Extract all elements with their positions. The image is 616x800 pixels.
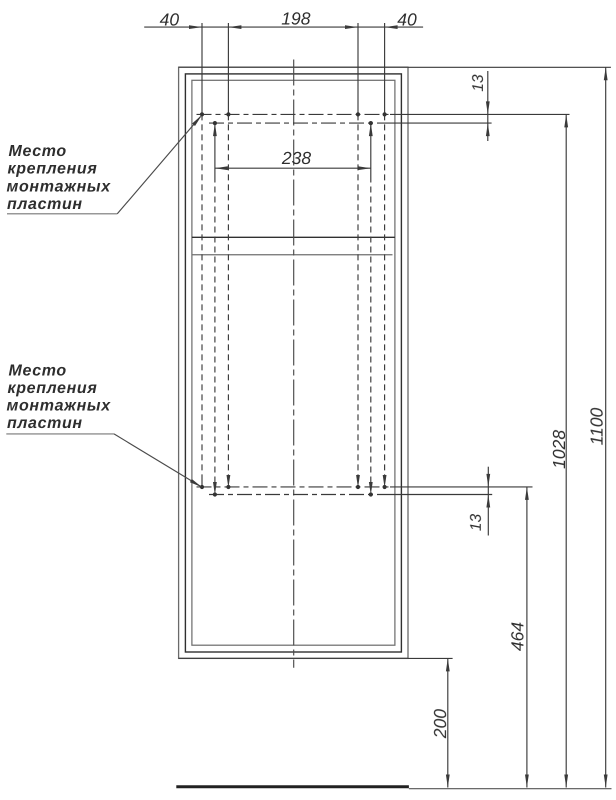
svg-text:238: 238	[281, 148, 311, 168]
svg-text:монтажных: монтажных	[7, 398, 112, 415]
svg-text:1100: 1100	[587, 408, 607, 446]
svg-text:пластин: пластин	[7, 415, 83, 432]
svg-text:198: 198	[281, 9, 310, 29]
svg-text:Место: Место	[9, 143, 67, 160]
svg-text:200: 200	[430, 709, 450, 739]
svg-text:13: 13	[470, 74, 487, 92]
svg-text:пластин: пластин	[7, 196, 83, 213]
svg-text:40: 40	[160, 10, 180, 30]
svg-text:13: 13	[468, 514, 485, 532]
svg-text:крепления: крепления	[8, 380, 98, 397]
svg-text:464: 464	[507, 622, 527, 651]
svg-text:40: 40	[397, 10, 417, 30]
svg-text:Место: Место	[9, 362, 67, 379]
svg-text:крепления: крепления	[8, 161, 98, 178]
svg-text:1028: 1028	[549, 430, 569, 469]
svg-text:монтажных: монтажных	[7, 178, 112, 195]
